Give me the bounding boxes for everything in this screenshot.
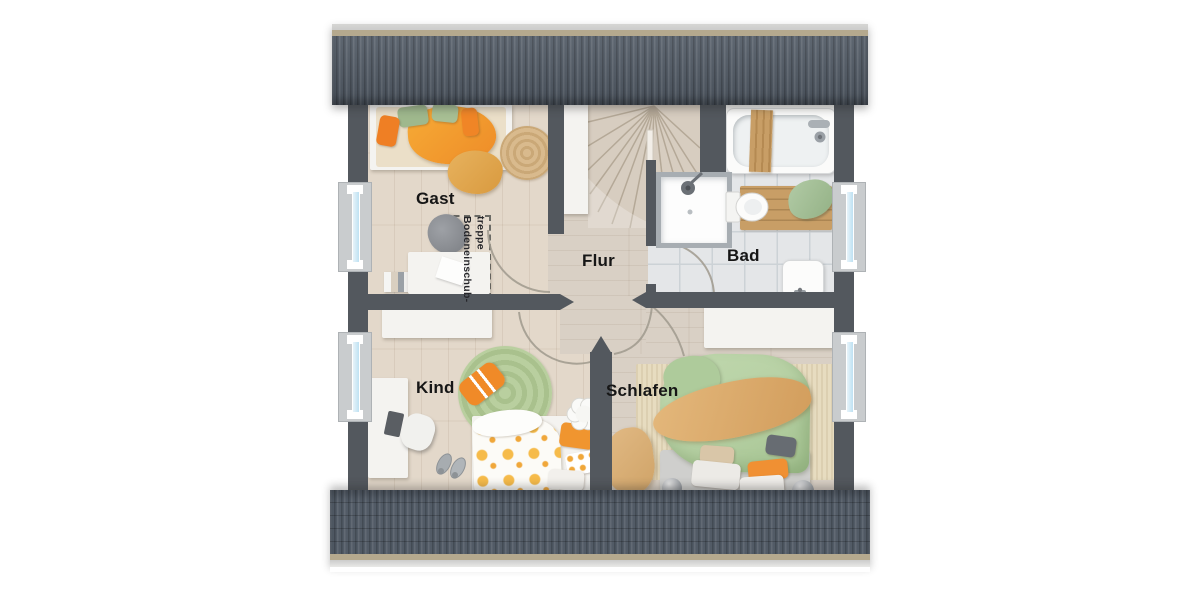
gast-pillow-green-1 <box>397 104 429 128</box>
wall-kind-schlafen <box>590 352 612 492</box>
kind-bed-pillow-white <box>547 469 584 491</box>
window-kind <box>338 332 372 422</box>
schlafen-pillow-white-1 <box>691 460 741 491</box>
wall-stair-bad <box>700 104 726 172</box>
wall-gast-kind <box>348 294 560 310</box>
attic-hatch-label-line2: treppe <box>473 216 486 296</box>
window-glass <box>352 341 360 413</box>
gast-pillow-green-2 <box>431 103 459 124</box>
window-glass <box>846 191 854 263</box>
gast-round-rug <box>500 126 554 180</box>
room-label-gast: Gast <box>416 189 455 209</box>
schlafen-book <box>765 434 797 458</box>
room-label-flur: Flur <box>582 251 615 271</box>
window-glass <box>846 341 854 413</box>
bathtub <box>726 108 836 174</box>
shower <box>656 172 732 248</box>
attic-hatch-label-line1: Bodeneinschub- <box>460 216 473 296</box>
gast-pillow-orange-2 <box>461 107 480 137</box>
bathtub-caddy <box>749 110 773 173</box>
attic-hatch-label: Bodeneinschub- treppe <box>460 216 486 296</box>
room-label-kind: Kind <box>416 378 455 398</box>
roof-band-bottom <box>330 490 870 572</box>
exterior-wall-right <box>834 104 854 510</box>
room-label-schlafen: Schlafen <box>606 381 678 401</box>
window-schlafen <box>832 332 866 422</box>
wall-bad-door-corner <box>646 284 656 296</box>
wall-bad-schlafen <box>646 292 834 308</box>
wall-shower-side <box>646 160 656 246</box>
roof-tiles <box>330 490 870 554</box>
window-gast <box>338 182 372 272</box>
bathtub-basin <box>733 115 829 167</box>
room-label-bad: Bad <box>727 246 760 266</box>
roof-band-top <box>332 24 868 105</box>
roof-tiles <box>332 36 868 105</box>
flur-closet <box>562 104 588 214</box>
window-bad <box>832 182 866 272</box>
wall-gast-flur <box>548 104 564 234</box>
window-glass <box>352 191 360 263</box>
roof-ridge-cap <box>330 560 870 567</box>
floor-plan: Gast Flur Bad Kind Schlafen Bodeneinschu… <box>0 0 1200 600</box>
